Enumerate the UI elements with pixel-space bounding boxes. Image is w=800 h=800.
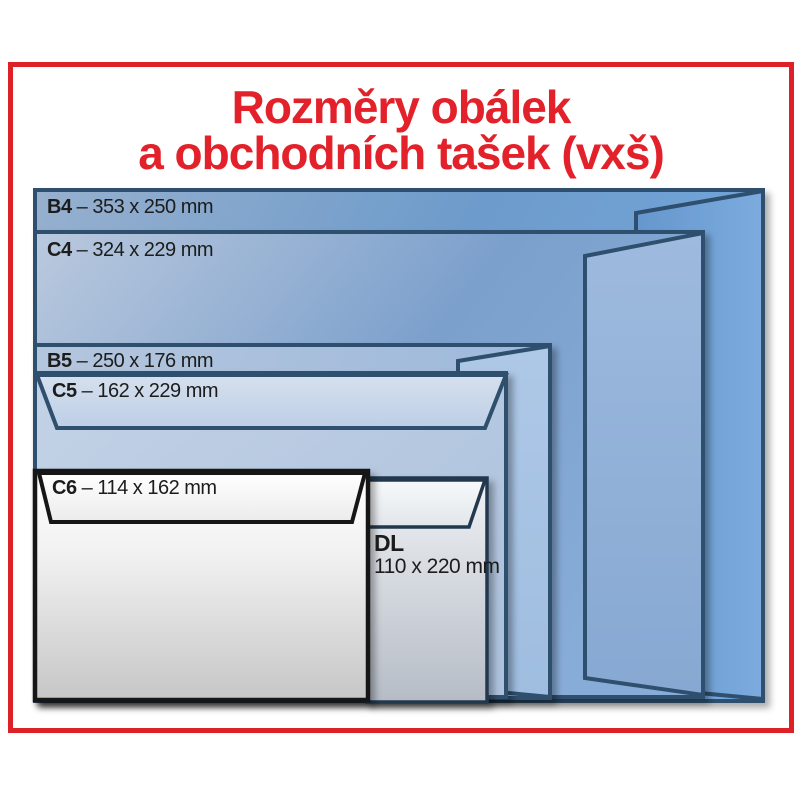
label-c6: C6 – 114 x 162 mm — [52, 478, 217, 498]
label-b4-dims: – 353 x 250 mm — [77, 196, 213, 218]
label-dl-dims: 110 x 220 mm — [374, 557, 500, 577]
page: Rozměry obálek a obchodních tašek (vxš) — [0, 0, 800, 800]
label-c5: C5 – 162 x 229 mm — [52, 381, 218, 401]
label-b5-code: B5 — [47, 350, 72, 372]
label-dl: DL 110 x 220 mm — [374, 533, 500, 577]
label-dl-code: DL — [374, 533, 500, 553]
label-b4: B4 – 353 x 250 mm — [47, 197, 213, 217]
label-b5: B5 – 250 x 176 mm — [47, 351, 213, 371]
envelope-c6 — [35, 471, 368, 700]
label-c4-code: C4 — [47, 239, 72, 261]
envelope-dl — [367, 478, 487, 702]
label-c5-dims: – 162 x 229 mm — [82, 380, 218, 402]
envelope-dl-flap — [368, 480, 485, 527]
envelope-c4-flap — [585, 233, 703, 695]
label-b5-dims: – 250 x 176 mm — [77, 350, 213, 372]
label-c4-dims: – 324 x 229 mm — [77, 239, 213, 261]
label-c6-dims: – 114 x 162 mm — [82, 477, 217, 499]
label-c5-code: C5 — [52, 380, 77, 402]
label-c4: C4 – 324 x 229 mm — [47, 240, 213, 260]
label-c6-code: C6 — [52, 477, 77, 499]
label-b4-code: B4 — [47, 196, 72, 218]
